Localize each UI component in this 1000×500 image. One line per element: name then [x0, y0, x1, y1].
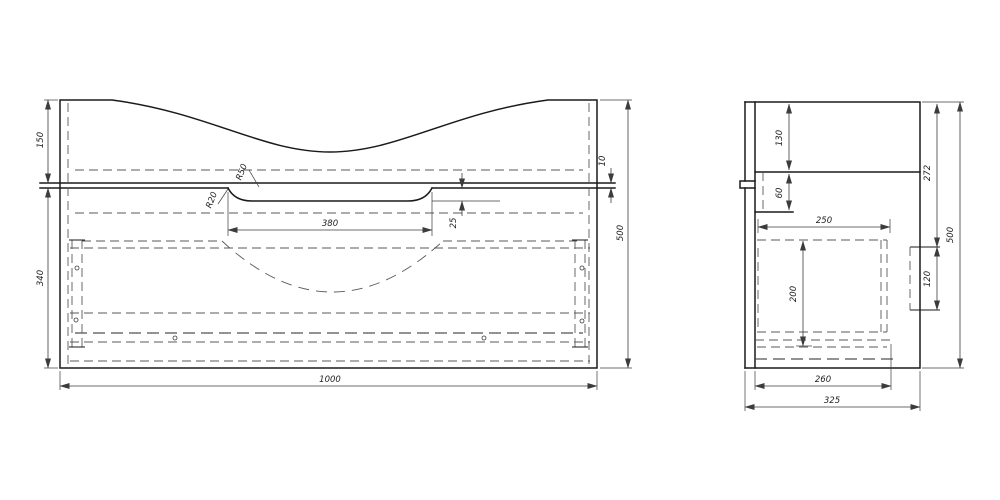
dim-label-60: 60 [775, 188, 785, 199]
dim-top-gap: 60 [775, 174, 789, 210]
dim-label-120: 120 [923, 271, 933, 287]
dim-label-380: 380 [322, 219, 338, 229]
dim-mount-rail: 120 [923, 247, 937, 310]
dim-label-1000: 1000 [319, 375, 341, 385]
dim-label-340: 340 [36, 270, 46, 286]
technical-drawing-page: 150 340 1000 500 10 25 [0, 0, 1000, 500]
sink-bowl-arc [222, 241, 443, 292]
dim-notch-depth: 25 [432, 173, 500, 228]
side-outline [745, 102, 920, 368]
dim-backsplash-height: 130 [775, 104, 789, 170]
dim-label-200: 200 [789, 286, 799, 302]
dim-label-500-side: 500 [946, 227, 956, 243]
dim-overall-width: 1000 [60, 371, 597, 390]
dim-overall-depth: 325 [745, 371, 920, 411]
dim-lower-section: 340 [36, 188, 58, 368]
side-view: 130 60 250 200 272 120 500 [740, 102, 964, 411]
side-drawer-back-hidden [881, 240, 887, 332]
dim-label-272: 272 [923, 165, 933, 181]
notch-profile [228, 188, 432, 201]
dim-overall-height-side: 500 [922, 102, 964, 368]
dim-overall-height-front: 500 [600, 100, 632, 368]
dim-label-150: 150 [36, 132, 46, 148]
dim-upper-section: 150 [36, 100, 58, 183]
dim-label-25: 25 [449, 218, 459, 229]
dim-countertop-thickness: 10 [598, 156, 611, 203]
dim-drawer-height: 200 [789, 241, 812, 346]
dim-label-10: 10 [598, 156, 608, 167]
front-view: 150 340 1000 500 10 25 [36, 100, 632, 390]
dim-bottom-depth: 260 [755, 344, 891, 390]
vanity-cabinet-drawing: 150 340 1000 500 10 25 [0, 0, 1000, 500]
side-countertop-nose [740, 181, 755, 188]
dim-label-130: 130 [775, 130, 785, 146]
dim-notch-width: 380 [228, 192, 432, 236]
front-outline [60, 100, 597, 368]
dim-label-250: 250 [816, 216, 832, 226]
radius-label-r50: R50 [234, 163, 250, 182]
rail-ticks [69, 240, 588, 347]
dim-label-500-front: 500 [616, 225, 626, 241]
radius-label-r20: R20 [204, 191, 220, 210]
dim-label-260: 260 [815, 375, 831, 385]
left-rail-hidden [72, 240, 82, 347]
fastener-holes-front [74, 266, 584, 340]
dim-upper-back: 272 [923, 104, 937, 247]
dim-label-325: 325 [824, 396, 840, 406]
dim-drawer-depth: 250 [758, 216, 890, 233]
right-rail-hidden [575, 240, 585, 347]
